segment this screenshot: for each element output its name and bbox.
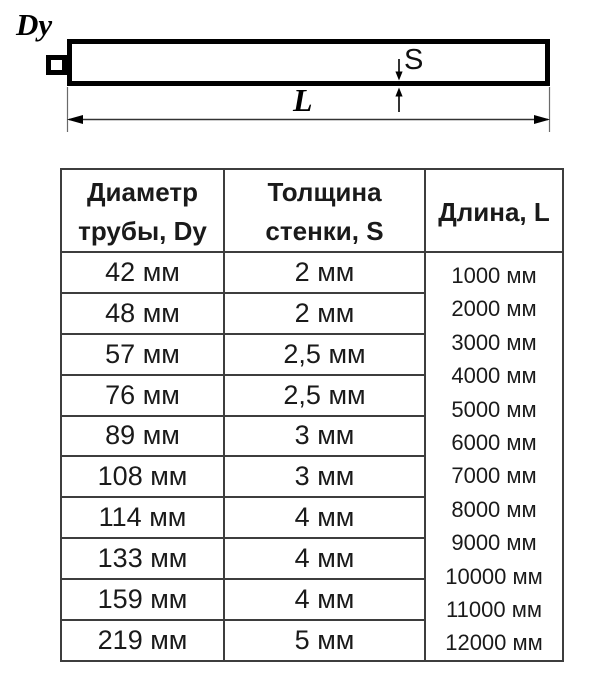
- length-value: 8000 мм: [426, 493, 562, 526]
- length-value: 11000 мм: [426, 593, 562, 626]
- thickness-cell: 4 мм: [224, 579, 425, 620]
- thickness-cell: 2 мм: [224, 252, 425, 293]
- pipe-technical-drawing: Dy S L: [0, 0, 608, 160]
- length-value: 9000 мм: [426, 526, 562, 559]
- diameter-dimension-label: Dy: [16, 9, 52, 40]
- dimension-arrow-left-icon: [67, 115, 83, 124]
- pipe-nozzle-shape: [49, 58, 65, 73]
- header-diameter-line2: трубы, Dy: [78, 216, 207, 246]
- header-diameter-line1: Диаметр: [87, 177, 198, 207]
- thickness-cell: 2,5 мм: [224, 334, 425, 375]
- diameter-cell: 57 мм: [61, 334, 224, 375]
- thickness-cell: 5 мм: [224, 620, 425, 661]
- length-value: 6000 мм: [426, 426, 562, 459]
- header-diameter: Диаметр трубы, Dy: [61, 169, 224, 252]
- thickness-cell: 4 мм: [224, 538, 425, 579]
- pipe-spec-table-wrapper: Диаметр трубы, Dy Толщина стенки, S Длин…: [60, 168, 564, 662]
- diameter-cell: 48 мм: [61, 293, 224, 334]
- thickness-cell: 4 мм: [224, 497, 425, 538]
- length-value: 10000 мм: [426, 560, 562, 593]
- header-length: Длина, L: [425, 169, 563, 252]
- length-value: 3000 мм: [426, 326, 562, 359]
- length-dimension-label: L: [293, 84, 313, 116]
- diameter-cell: 76 мм: [61, 375, 224, 416]
- diameter-cell: 114 мм: [61, 497, 224, 538]
- pipe-drawing-canvas: [0, 0, 608, 160]
- diameter-cell: 133 мм: [61, 538, 224, 579]
- length-value: 2000 мм: [426, 292, 562, 325]
- dimension-arrow-right-icon: [534, 115, 550, 124]
- length-list: 1000 мм 2000 мм 3000 мм 4000 мм 5000 мм …: [426, 253, 562, 660]
- length-value: 4000 мм: [426, 359, 562, 392]
- length-value: 1000 мм: [426, 259, 562, 292]
- length-value: 7000 мм: [426, 459, 562, 492]
- diameter-cell: 89 мм: [61, 416, 224, 457]
- header-thickness-line1: Толщина: [267, 177, 381, 207]
- diameter-cell: 159 мм: [61, 579, 224, 620]
- header-thickness: Толщина стенки, S: [224, 169, 425, 252]
- diameter-cell: 219 мм: [61, 620, 224, 661]
- table-row: 42 мм 2 мм 1000 мм 2000 мм 3000 мм 4000 …: [61, 252, 563, 293]
- wall-thickness-dimension-label: S: [404, 46, 423, 75]
- table-header-row: Диаметр трубы, Dy Толщина стенки, S Длин…: [61, 169, 563, 252]
- spec-sheet-page: Dy S L Диаметр трубы, Dy Толщина стенки,…: [0, 0, 608, 700]
- length-value: 12000 мм: [426, 626, 562, 659]
- thickness-cell: 2,5 мм: [224, 375, 425, 416]
- diameter-cell: 42 мм: [61, 252, 224, 293]
- pipe-spec-table: Диаметр трубы, Dy Толщина стенки, S Длин…: [60, 168, 564, 662]
- thickness-cell: 2 мм: [224, 293, 425, 334]
- diameter-cell: 108 мм: [61, 456, 224, 497]
- thickness-cell: 3 мм: [224, 456, 425, 497]
- thickness-cell: 3 мм: [224, 416, 425, 457]
- length-value: 5000 мм: [426, 393, 562, 426]
- length-merged-cell: 1000 мм 2000 мм 3000 мм 4000 мм 5000 мм …: [425, 252, 563, 661]
- header-thickness-line2: стенки, S: [265, 216, 383, 246]
- pipe-body-shape: [70, 42, 548, 84]
